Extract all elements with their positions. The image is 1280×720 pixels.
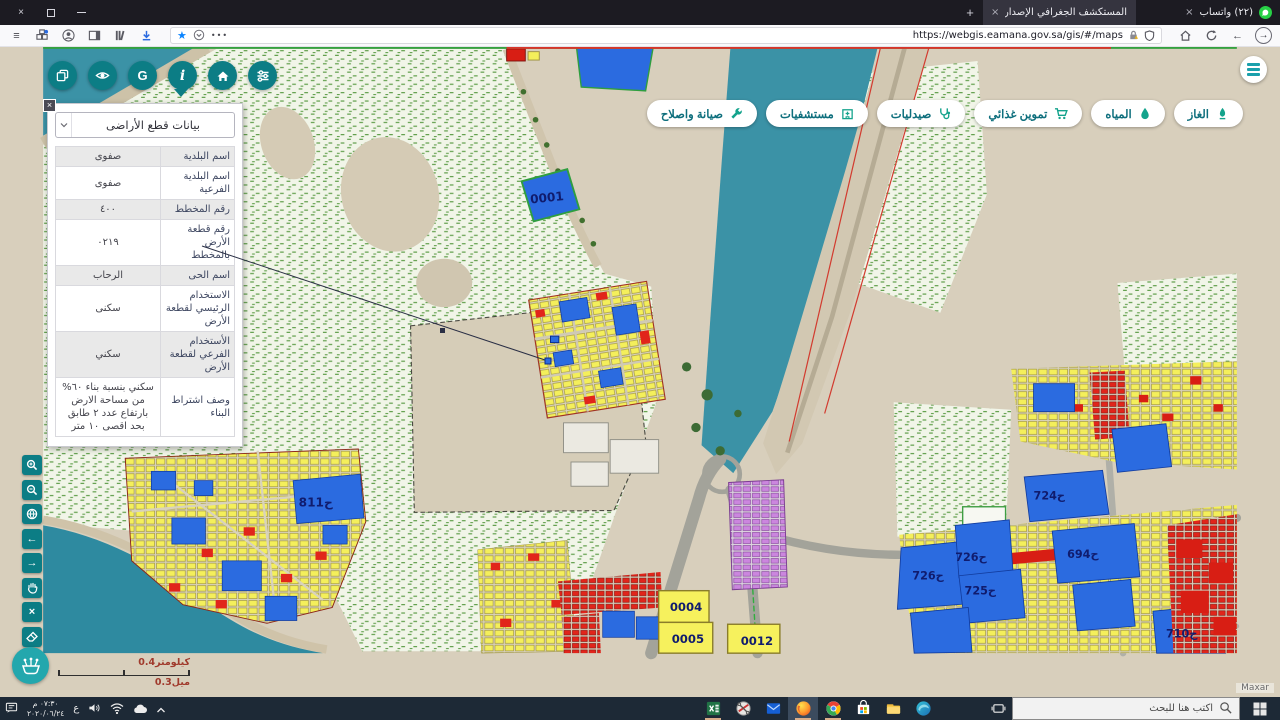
- tab-title: المستكشف الجغرافي الإصدار رقم 1.1: [1005, 7, 1127, 18]
- taskbar-apps: [698, 697, 938, 720]
- volume-icon[interactable]: [88, 699, 101, 718]
- panel-row: اسم الحىالرحاب: [56, 266, 235, 286]
- panel-row: رقم قطعة الأرض بالمخطط٠٢١٩: [56, 220, 235, 266]
- panel-table-body: اسم البلديةصفوىاسم البلدية الفرعيةصفوىرق…: [56, 147, 235, 437]
- url-text: https://webgis.eamana.gov.sa/gis/#/maps: [913, 30, 1123, 41]
- svg-text:0012: 0012: [741, 634, 773, 648]
- pan-button[interactable]: [22, 578, 42, 598]
- window-minimize-icon[interactable]: [66, 0, 96, 25]
- panel-row: رقم المخطط٤٠٠: [56, 200, 235, 220]
- scale-line: [58, 670, 190, 676]
- url-bar[interactable]: ★ ••• https://webgis.eamana.gov.sa/gis/#…: [170, 27, 1162, 44]
- file-explorer-taskbar-icon[interactable]: [878, 697, 908, 720]
- back-icon[interactable]: ←: [1229, 27, 1246, 44]
- window-restore-icon[interactable]: [36, 0, 66, 25]
- panel-row-value: صفوى: [56, 167, 161, 200]
- tab-title: (٢٢) واتساب: [1199, 7, 1253, 18]
- navigation-toolbar: ← → ×: [22, 455, 42, 647]
- forward-icon[interactable]: →: [1255, 27, 1272, 44]
- service-buttons: الغاز المياه تموين غذائي صيدليات مستشفيا…: [647, 100, 1243, 127]
- hospitals-button[interactable]: مستشفيات: [766, 100, 868, 127]
- panel-row-label: الأستخدام الفرعي لقطعة الأرض: [161, 332, 235, 378]
- svg-text:726ح: 726ح: [955, 551, 987, 564]
- pharmacies-button[interactable]: صيدليات: [877, 100, 966, 127]
- maintenance-button[interactable]: صيانة واصلاح: [647, 100, 757, 127]
- panel-row-value: صفوى: [56, 147, 161, 167]
- tab-active[interactable]: المستكشف الجغرافي الإصدار رقم 1.1 ×: [983, 0, 1135, 25]
- tab-close-icon[interactable]: ×: [991, 7, 999, 18]
- food-supply-button[interactable]: تموين غذائي: [974, 100, 1082, 127]
- whatsapp-icon: [1259, 6, 1272, 19]
- scale-bar: 0.4كيلومتر 0.3ميل: [58, 657, 190, 688]
- service-label: مستشفيات: [780, 107, 834, 121]
- bookmark-star-icon[interactable]: ★: [177, 29, 187, 42]
- boundary-line-red: [507, 47, 1111, 49]
- panel-row-value: ٤٠٠: [56, 200, 161, 220]
- panel-row-value: الرحاب: [56, 266, 161, 286]
- info-icon: i: [180, 68, 185, 84]
- service-label: تموين غذائي: [988, 107, 1047, 121]
- home-icon[interactable]: [1177, 27, 1194, 44]
- google-basemap-button[interactable]: G: [128, 61, 157, 90]
- extensions-icon[interactable]: [34, 27, 51, 44]
- downloads-icon[interactable]: [138, 27, 155, 44]
- scale-km-label: 0.4كيلومتر: [58, 657, 190, 668]
- menu-icon: [1247, 68, 1260, 70]
- chevron-down-icon: [56, 113, 72, 137]
- menu-icon: [1247, 73, 1260, 75]
- panel-row: الاستخدام الرئيسي لقطعة الأرضسكنى: [56, 286, 235, 332]
- eraser-button[interactable]: [22, 627, 42, 647]
- windows-taskbar: ٠٧:٣٠ م ٢٠٢٠/٠٦/٢٤ ع: [0, 697, 1280, 720]
- panel-row-label: وصف اشتراط البناء: [161, 378, 235, 437]
- reload-icon[interactable]: [1203, 27, 1220, 44]
- full-extent-button[interactable]: [22, 504, 42, 524]
- clock-date: ٢٠٢٠/٠٦/٢٤: [27, 709, 64, 718]
- task-view-icon[interactable]: [984, 697, 1012, 720]
- svg-text:0004: 0004: [670, 600, 702, 614]
- svg-text:710ح: 710ح: [1166, 627, 1198, 640]
- system-tray: ٠٧:٣٠ م ٢٠٢٠/٠٦/٢٤ ع: [5, 697, 166, 720]
- panel-layer-select[interactable]: بيانات قطع الأراضى: [55, 112, 235, 138]
- panel-close-icon[interactable]: ×: [43, 99, 56, 112]
- parcel-info-panel: × بيانات قطع الأراضى اسم البلديةصفوىاسم …: [47, 103, 243, 447]
- browser-toolbar: ≡ ★ ••• https://webgis.eamana.gov.sa: [0, 25, 1280, 47]
- chrome-taskbar-icon[interactable]: [818, 697, 848, 720]
- tray-expand-icon[interactable]: [156, 699, 166, 718]
- zoom-in-button[interactable]: [22, 455, 42, 475]
- panel-row-value: سكني بنسبة بناء ٦٠% من مساحة الارض بارتف…: [56, 378, 161, 437]
- next-extent-button[interactable]: →: [22, 553, 42, 573]
- panel-row-label: اسم الحى: [161, 266, 235, 286]
- wifi-icon[interactable]: [110, 699, 124, 718]
- main-menu-button[interactable]: [1240, 56, 1267, 83]
- onedrive-cloud-icon[interactable]: [133, 699, 147, 718]
- svg-text:694ح: 694ح: [1067, 548, 1099, 561]
- taskbar-right: اكتب هنا للبحث: [984, 697, 1280, 720]
- parcel-cluster-plan400: [529, 281, 666, 418]
- panel-row-label: رقم قطعة الأرض بالمخطط: [161, 220, 235, 266]
- svg-text:0005: 0005: [672, 632, 704, 646]
- panel-table: اسم البلديةصفوىاسم البلدية الفرعيةصفوىرق…: [55, 146, 235, 437]
- library-icon[interactable]: [112, 27, 129, 44]
- panel-row-label: اسم البلدية: [161, 147, 235, 167]
- svg-text:725ح: 725ح: [965, 584, 997, 597]
- snipping-tool-taskbar-icon[interactable]: [728, 697, 758, 720]
- map-area: 0001 811ح 724ح 694ح 726ح 726ح 725ح 710ح …: [0, 47, 1280, 697]
- taskbar-clock[interactable]: ٠٧:٣٠ م ٢٠٢٠/٠٦/٢٤: [27, 699, 64, 718]
- map-attribution: Maxar: [1236, 683, 1274, 693]
- mail-taskbar-icon[interactable]: [758, 697, 788, 720]
- panel-select-label: بيانات قطع الأراضى: [72, 118, 234, 132]
- service-label: الغاز: [1188, 107, 1209, 121]
- panel-row-label: اسم البلدية الفرعية: [161, 167, 235, 200]
- info-button[interactable]: i: [168, 61, 197, 90]
- svg-text:811ح: 811ح: [299, 496, 333, 510]
- sidebar-icon[interactable]: [86, 27, 103, 44]
- clock-time: ٠٧:٣٠ م: [27, 699, 64, 708]
- scale-mi-label: 0.3ميل: [58, 677, 190, 688]
- shield-icon[interactable]: [1144, 26, 1155, 45]
- zoom-out-button[interactable]: [22, 480, 42, 500]
- page-actions-icon[interactable]: •••: [211, 31, 228, 40]
- tab-strip: + المستكشف الجغرافي الإصدار رقم 1.1 × (٢…: [957, 0, 1280, 25]
- home-extent-button[interactable]: [208, 61, 237, 90]
- selected-parcel[interactable]: [550, 336, 558, 343]
- language-indicator[interactable]: ع: [73, 703, 79, 714]
- eye-button[interactable]: [88, 61, 117, 90]
- new-tab-button[interactable]: +: [957, 0, 983, 25]
- account-icon[interactable]: [60, 27, 77, 44]
- panel-row: اسم البلدية الفرعيةصفوى: [56, 167, 235, 200]
- start-button[interactable]: [1240, 697, 1280, 720]
- pocket-icon[interactable]: [193, 26, 205, 45]
- browser-titlebar: × + المستكشف الجغرافي الإصدار رقم 1.1 × …: [0, 0, 1280, 25]
- menu-icon[interactable]: ≡: [8, 27, 25, 44]
- search-icon: [1219, 701, 1232, 717]
- taskbar-search-input[interactable]: اكتب هنا للبحث: [1012, 697, 1240, 720]
- svg-text:726ح: 726ح: [912, 569, 944, 582]
- screen: × + المستكشف الجغرافي الإصدار رقم 1.1 × …: [0, 0, 1280, 720]
- panel-row: اسم البلديةصفوى: [56, 147, 235, 167]
- microsoft-store-taskbar-icon[interactable]: [848, 697, 878, 720]
- map-toolbar: G i: [48, 61, 277, 90]
- panel-row-value: سكنى: [56, 286, 161, 332]
- lock-warning-icon[interactable]: [1128, 26, 1139, 45]
- edge-taskbar-icon[interactable]: [908, 697, 938, 720]
- notification-icon[interactable]: [5, 699, 18, 718]
- service-label: صيدليات: [891, 107, 932, 121]
- previous-extent-button[interactable]: ←: [22, 529, 42, 549]
- window-controls: ×: [6, 0, 96, 25]
- service-label: صيانة واصلاح: [661, 107, 723, 121]
- service-label: المياه: [1105, 107, 1131, 121]
- excel-taskbar-icon[interactable]: [698, 697, 728, 720]
- info-panel-pointer: [174, 89, 188, 104]
- tab-close-icon[interactable]: ×: [1185, 7, 1193, 18]
- copy-layers-button[interactable]: [48, 61, 77, 90]
- panel-row-value: سكني: [56, 332, 161, 378]
- panel-row: وصف اشتراط البناءسكني بنسبة بناء ٦٠% من …: [56, 378, 235, 437]
- tab-whatsapp[interactable]: (٢٢) واتساب ×: [1135, 0, 1280, 25]
- panel-row-label: رقم المخطط: [161, 200, 235, 220]
- clear-button[interactable]: ×: [22, 602, 42, 622]
- svg-text:724ح: 724ح: [1034, 489, 1066, 502]
- menu-icon: [1247, 63, 1260, 65]
- panel-row-label: الاستخدام الرئيسي لقطعة الأرض: [161, 286, 235, 332]
- firefox-taskbar-icon[interactable]: [788, 697, 818, 720]
- layer-settings-button[interactable]: [248, 61, 277, 90]
- search-placeholder: اكتب هنا للبحث: [1149, 703, 1213, 714]
- gas-button[interactable]: الغاز: [1174, 100, 1243, 127]
- tools-basket-button[interactable]: [12, 647, 49, 684]
- window-close-icon[interactable]: ×: [6, 0, 36, 25]
- panel-row: الأستخدام الفرعي لقطعة الأرضسكني: [56, 332, 235, 378]
- water-button[interactable]: المياه: [1091, 100, 1164, 127]
- panel-row-value: ٠٢١٩: [56, 220, 161, 266]
